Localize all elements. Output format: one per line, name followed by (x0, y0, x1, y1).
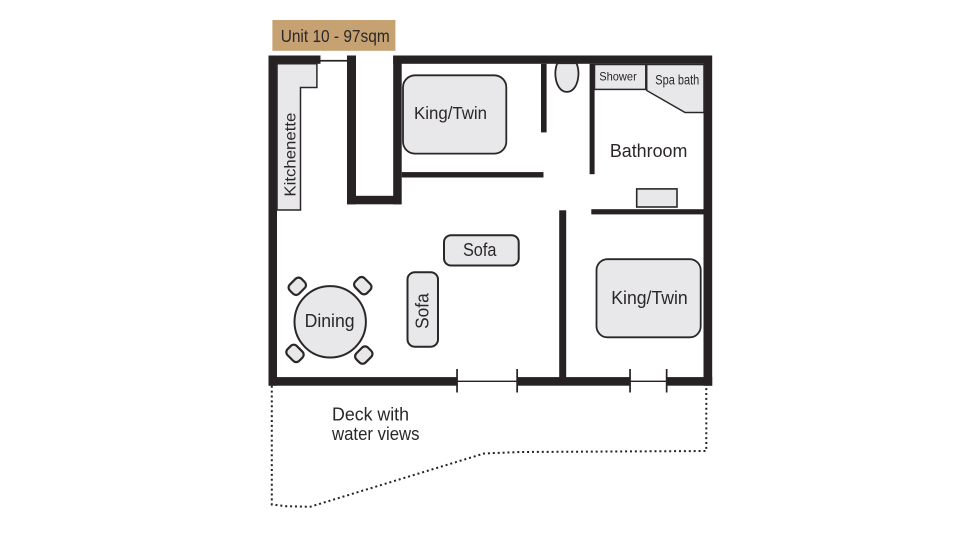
svg-text:King/Twin: King/Twin (611, 288, 688, 308)
svg-text:Deck with: Deck with (332, 404, 409, 424)
svg-text:King/Twin: King/Twin (414, 103, 487, 123)
svg-text:Spa bath: Spa bath (655, 72, 699, 88)
svg-text:Bathroom: Bathroom (610, 141, 688, 161)
svg-text:Sofa: Sofa (463, 240, 497, 260)
svg-text:water views: water views (331, 424, 419, 444)
svg-text:Sofa: Sofa (412, 292, 432, 329)
svg-text:Shower: Shower (599, 70, 637, 84)
svg-text:Kitchenette: Kitchenette (283, 113, 300, 197)
svg-text:Unit 10 - 97sqm: Unit 10 - 97sqm (281, 26, 390, 46)
svg-text:Dining: Dining (305, 311, 355, 331)
